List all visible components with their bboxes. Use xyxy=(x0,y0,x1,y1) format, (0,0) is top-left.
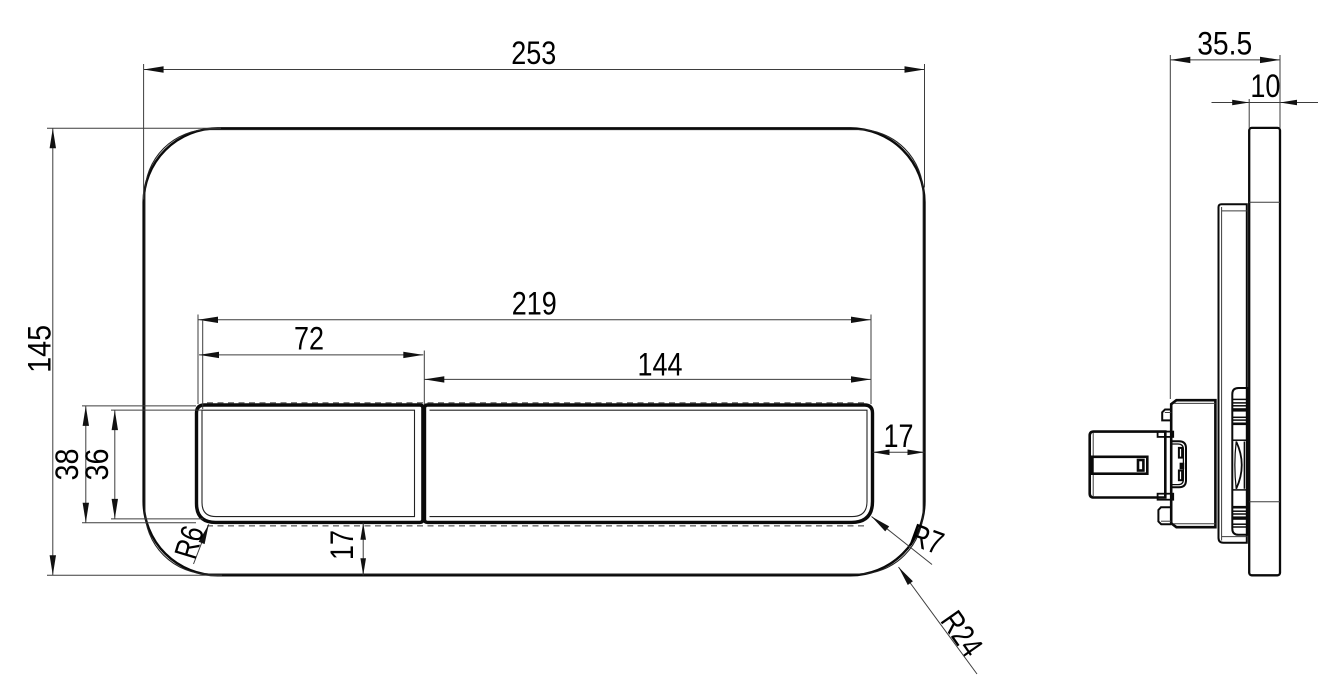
svg-text:253: 253 xyxy=(511,35,556,71)
svg-text:R24: R24 xyxy=(934,604,990,663)
svg-text:219: 219 xyxy=(512,285,557,321)
svg-text:17: 17 xyxy=(324,530,360,560)
svg-text:144: 144 xyxy=(638,346,683,382)
svg-text:R6: R6 xyxy=(167,522,211,563)
svg-text:145: 145 xyxy=(22,325,58,373)
svg-text:17: 17 xyxy=(884,418,914,454)
svg-text:36: 36 xyxy=(79,449,115,481)
svg-text:10: 10 xyxy=(1250,68,1280,104)
svg-text:72: 72 xyxy=(294,320,324,356)
svg-text:35.5: 35.5 xyxy=(1197,25,1252,61)
svg-text:R7: R7 xyxy=(905,517,948,562)
